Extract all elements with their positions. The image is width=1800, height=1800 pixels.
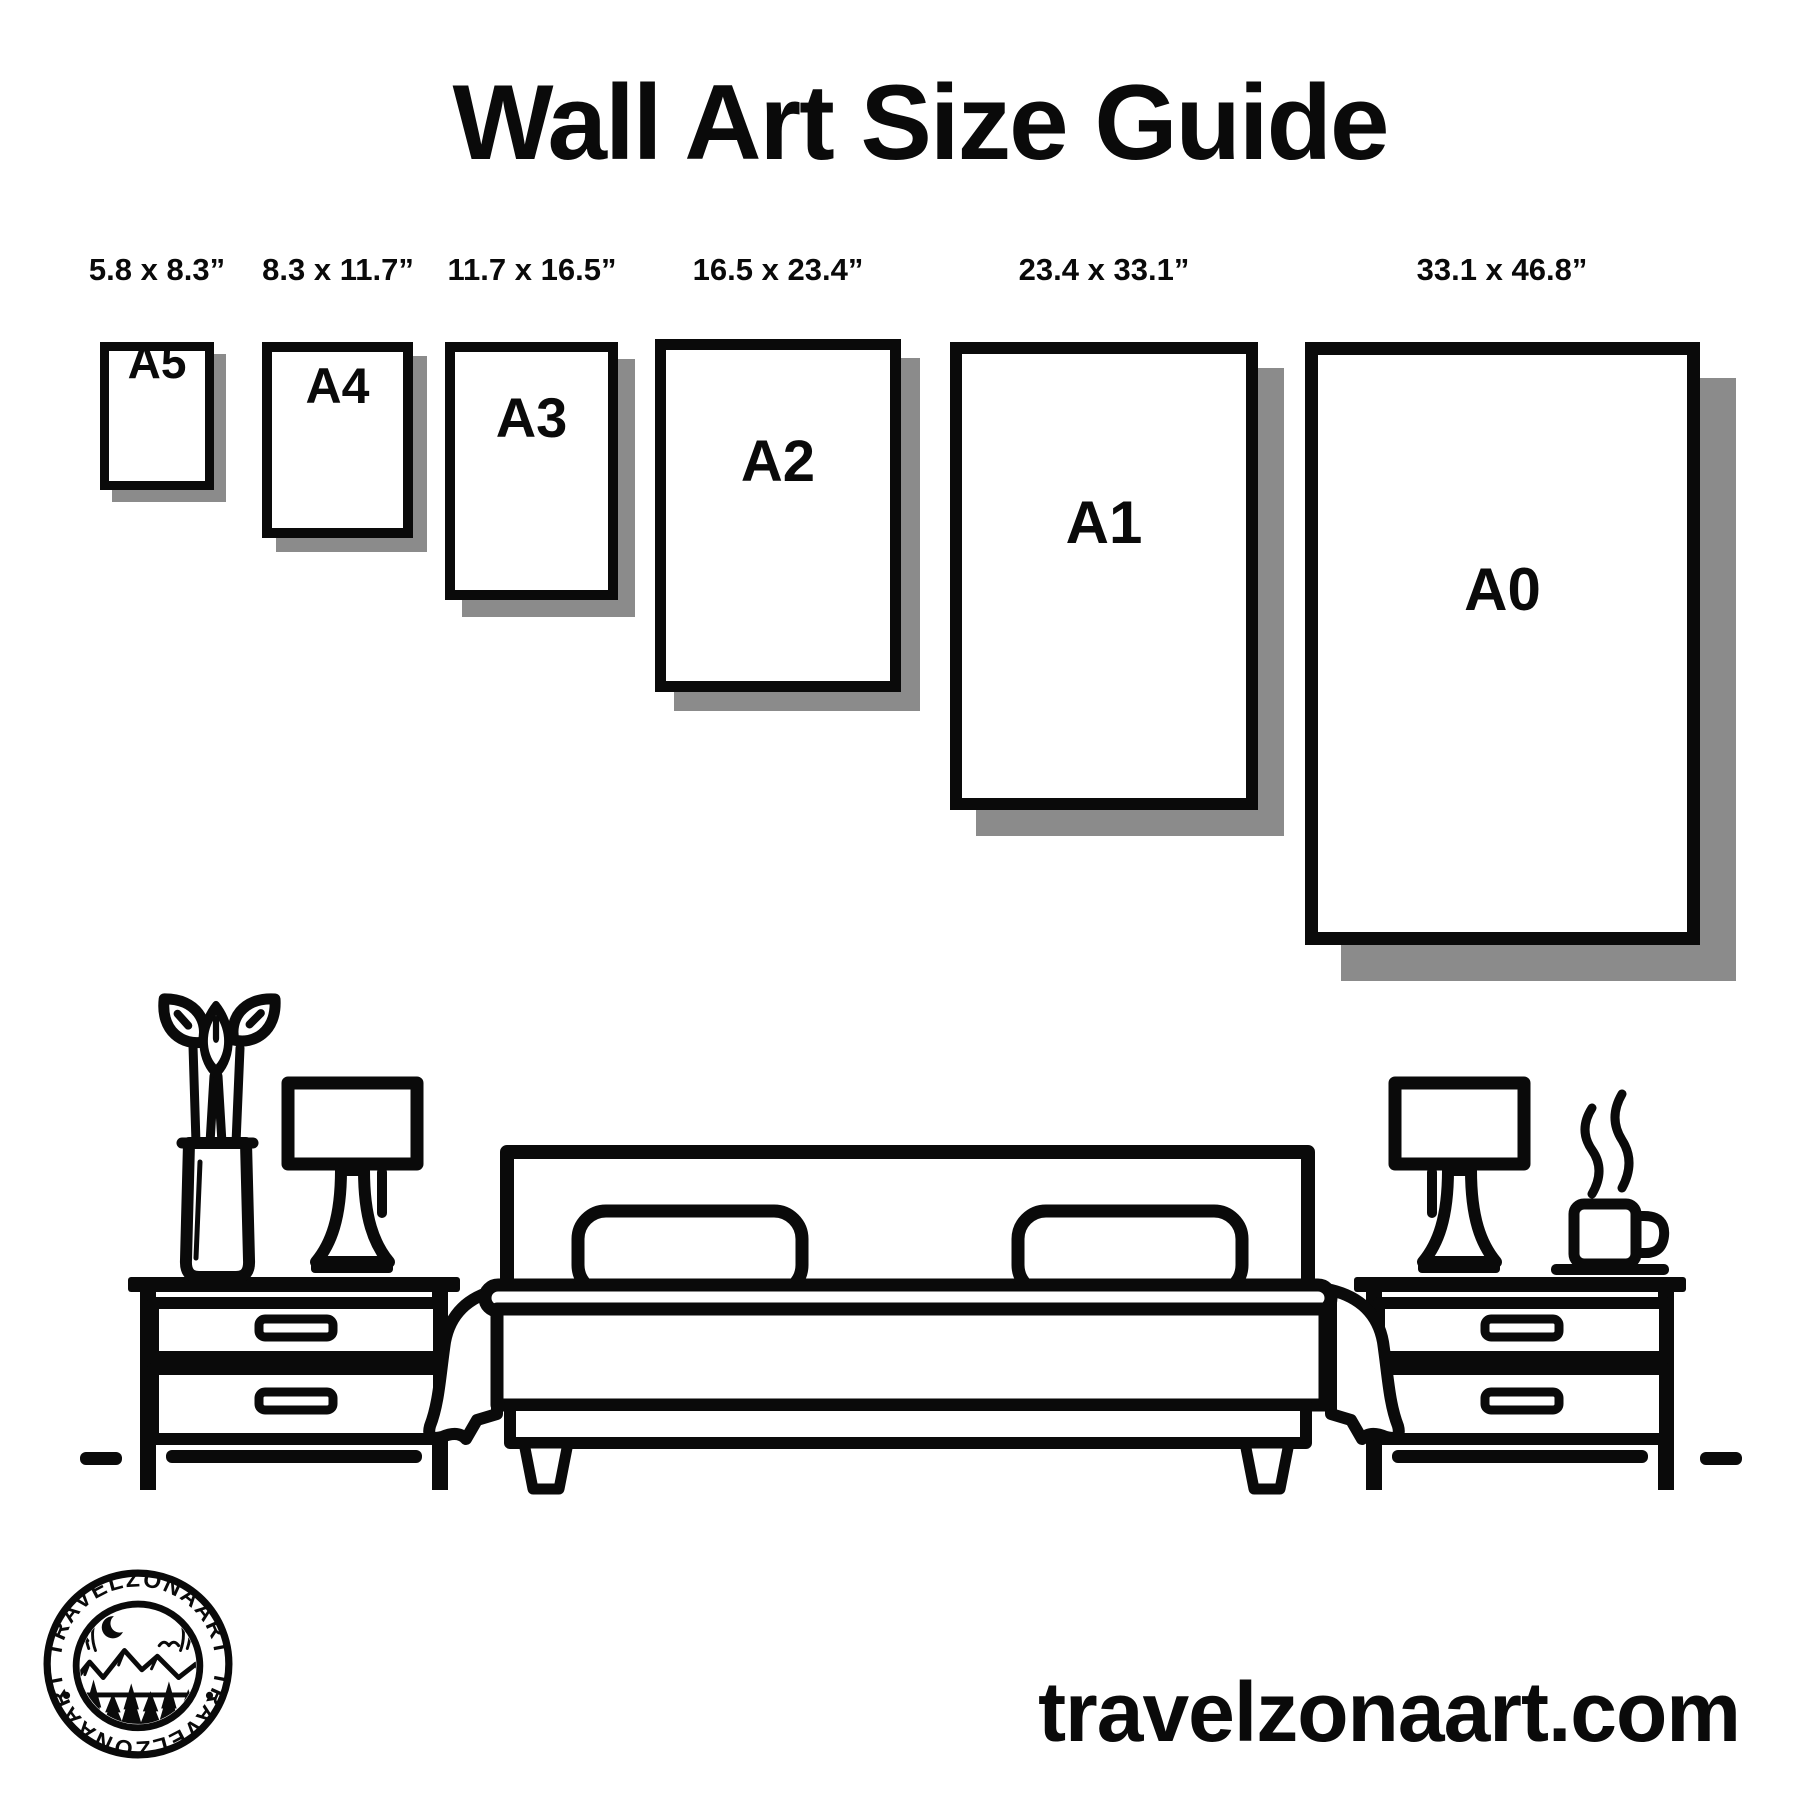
mountains-icon [63, 1650, 214, 1694]
table-lamp-icon [1395, 1083, 1524, 1273]
bedroom-illustration [0, 980, 1800, 1500]
size-frame-a5-code: A5 [128, 335, 187, 389]
website-url: travelzonaart.com [1038, 1664, 1740, 1761]
plant-vase-icon [152, 988, 286, 1277]
brand-logo: TRAVELZONAART TRAVELZONAART • • [22, 1548, 254, 1780]
size-frame-a0-code: A0 [1464, 555, 1541, 624]
bed-leg [1245, 1443, 1289, 1489]
size-frame-a5: A5 [100, 342, 214, 490]
coffee-mug-icon [1551, 1094, 1669, 1275]
logo-brand-text-top: TRAVELZONAART [40, 1565, 236, 1658]
logo-dot-left: • [62, 1682, 71, 1710]
crescent-moon-icon [102, 1614, 129, 1638]
size-label-a1: 23.4 x 33.1” [1019, 252, 1190, 288]
size-frame-a3-code: A3 [496, 385, 568, 450]
bed-base [510, 1405, 1306, 1443]
steam-icon [1615, 1094, 1629, 1188]
blanket [497, 1309, 1325, 1405]
size-label-a0: 33.1 x 46.8” [1417, 252, 1588, 288]
drawer-handle-icon [1485, 1319, 1559, 1337]
drawer-handle-icon [259, 1319, 333, 1337]
floor-line-icon [80, 1450, 1742, 1465]
table-lamp-icon [288, 1083, 417, 1273]
drawer-handle-icon [259, 1392, 333, 1410]
wall-art-size-guide-poster: Wall Art Size Guide 5.8 x 8.3” 8.3 x 11.… [0, 0, 1800, 1800]
double-bed-icon [429, 1152, 1399, 1489]
size-frame-a4: A4 [262, 342, 413, 538]
size-frame-a0: A0 [1305, 342, 1700, 945]
size-frame-a4-code: A4 [306, 357, 370, 415]
size-label-a5: 5.8 x 8.3” [89, 252, 225, 288]
size-frame-a1-code: A1 [1066, 488, 1143, 557]
size-label-a2: 16.5 x 23.4” [693, 252, 864, 288]
size-frame-a3: A3 [445, 342, 618, 600]
drawer-handle-icon [1485, 1392, 1559, 1410]
size-frame-a1: A1 [950, 342, 1258, 810]
size-frame-a2-code: A2 [741, 428, 815, 495]
bed-leg [524, 1443, 568, 1489]
bird-icon [159, 1642, 178, 1645]
size-frame-a2: A2 [655, 339, 901, 692]
steam-icon [1585, 1108, 1599, 1194]
size-label-a4: 8.3 x 11.7” [262, 252, 414, 288]
size-label-a3: 11.7 x 16.5” [448, 252, 617, 288]
logo-dot-right: • [205, 1682, 214, 1710]
page-title: Wall Art Size Guide [40, 66, 1800, 178]
